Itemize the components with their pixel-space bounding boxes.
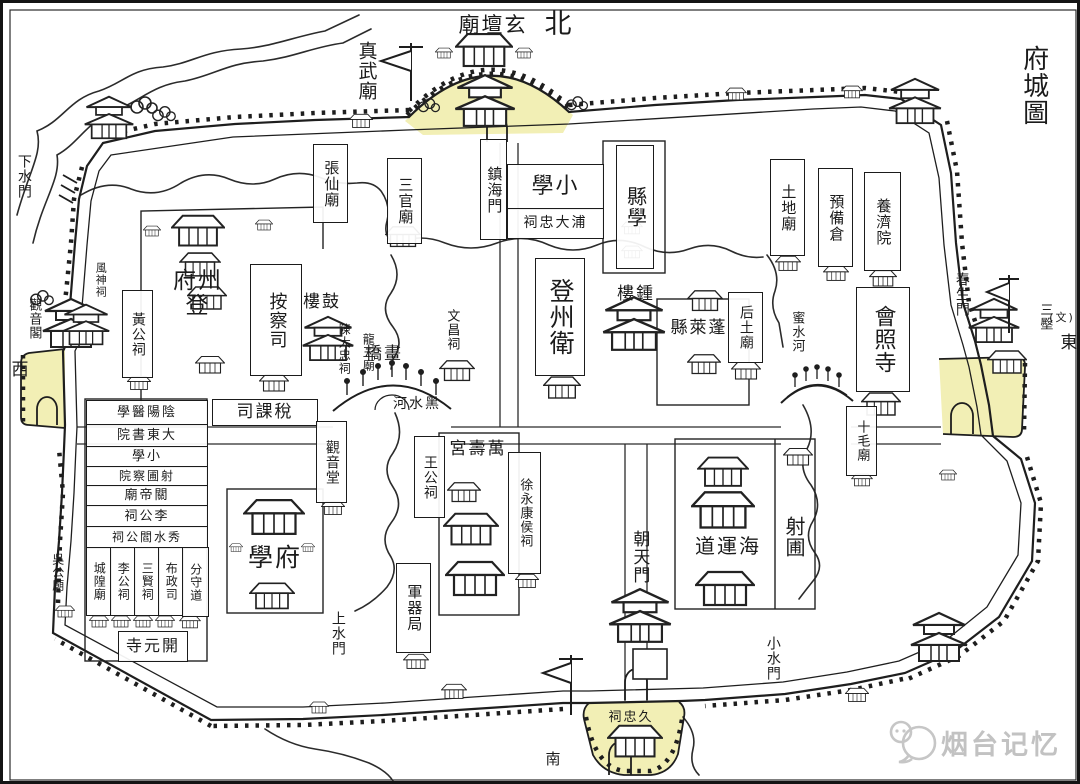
label-huizhao-temple: 會照寺 <box>856 287 910 392</box>
label-shimao-temple: 十毛廟 <box>846 406 877 476</box>
label-wanshou-palace: 宮壽萬 <box>440 436 516 463</box>
label-fenshou-dao: 分守道 <box>182 547 209 617</box>
label-houtu-temple: 后土廟 <box>728 292 763 363</box>
label-ligong-shrine-row: 祠公李 <box>86 505 208 528</box>
label-zhenwu-temple: 真武廟 <box>353 28 378 114</box>
label-guandi-temple: 廟帝關 <box>86 485 208 507</box>
label-xuyongkang-shrine: 徐永康侯祠 <box>508 452 541 574</box>
label-heishui-river: 河水黑 <box>383 394 451 414</box>
label-shepu-chayuan: 院察圃射 <box>86 466 208 487</box>
label-yubei-granary: 預備倉 <box>818 168 853 267</box>
label-zhangxian-temple: 張仙廟 <box>313 144 348 223</box>
label-xiushui-yangong-shrine: 祠公閻水秀 <box>86 526 208 549</box>
label-wugong-temple: 吳公廟 <box>48 542 67 602</box>
label-shuike-si: 司課稅 <box>212 399 318 426</box>
label-dengzhou-wei: 登州衛 <box>535 258 585 376</box>
label-xiaoshui-gate: 小水門 <box>760 628 785 688</box>
label-fu-xue: 學府 <box>237 540 313 577</box>
map-labels: 府城圖北西東南三壂(文)真武廟廟壇玄張仙廟三官廟鎮海門學小祠忠大浦縣學土地廟預備… <box>3 3 1077 781</box>
label-dadong-academy: 院書東大 <box>86 424 208 448</box>
label-huanggong-shrine: 黃公祠 <box>122 290 153 378</box>
label-haiyun-dao: 道運海 <box>676 531 780 562</box>
label-fengshen-shrine: 風神祠 <box>91 254 110 306</box>
label-ligong-shrine: 李公祠 <box>110 547 136 616</box>
label-sanxian-shrine: 三賢祠 <box>134 547 160 616</box>
label-chaotian-gate: 朝天門 <box>626 516 651 598</box>
label-chunsheng-gate: 春生門 <box>950 262 973 326</box>
label-east-note: (文) <box>1047 310 1077 326</box>
label-zhenhai-gate: 鎮海門 <box>480 139 507 240</box>
label-chenghuang-temple: 城隍廟 <box>86 547 112 616</box>
label-xuantan-temple: 廟壇玄 <box>452 12 534 39</box>
label-dengzhou-fu: 府州登 <box>163 276 233 311</box>
label-xiashui-gate: 下水門 <box>12 145 35 207</box>
label-wenchang-shrine: 文昌祠 <box>440 300 463 360</box>
label-guanyin-hall: 觀音堂 <box>316 421 347 503</box>
label-kaiyuan-temple: 寺元開 <box>118 631 188 662</box>
label-jiuzhong-shrine: 祠忠久 <box>599 708 663 728</box>
label-sanguan-temple: 三官廟 <box>387 158 422 244</box>
label-mishui-river: 蜜水河 <box>786 300 807 364</box>
label-pudazhong-shrine: 祠忠大浦 <box>507 208 604 239</box>
label-junqi-bureau: 軍器局 <box>396 563 431 653</box>
watermark-text: 烟台记忆 <box>941 723 1061 762</box>
label-map-title: 府城圖 <box>1015 33 1051 137</box>
label-shangshui-gate: 上水門 <box>326 604 349 662</box>
label-dir-north: 北 <box>541 9 577 41</box>
label-dir-west: 西 <box>9 360 33 382</box>
label-hua-qiao: 橋畫 <box>344 342 424 367</box>
label-dir-south: 南 <box>543 750 565 770</box>
label-gu-lou: 樓鼓 <box>297 290 347 315</box>
label-ancha-si: 按察司 <box>250 264 302 376</box>
label-xiaoxue-row: 學小 <box>86 446 208 468</box>
label-yangji-house: 養濟院 <box>864 172 901 271</box>
label-she-pu: 射圃 <box>780 480 807 594</box>
label-guanyin-pavilion: 觀音閣 <box>24 288 43 350</box>
label-zhong-lou: 樓鍾 <box>610 282 662 307</box>
label-dir-east: 東 <box>1058 333 1080 355</box>
city-map: 府城圖北西東南三壂(文)真武廟廟壇玄張仙廟三官廟鎮海門學小祠忠大浦縣學土地廟預備… <box>0 0 1080 784</box>
label-penglai-xian: 縣萊蓬 <box>663 315 735 343</box>
label-xiaoxue-school: 學小 <box>507 164 604 210</box>
label-xianxue-school: 縣學 <box>616 145 654 269</box>
label-buzheng-si: 布政司 <box>158 547 184 616</box>
label-yinyang-yixue: 學醫陽陰 <box>86 400 208 426</box>
label-tudi-temple: 土地廟 <box>770 159 805 256</box>
